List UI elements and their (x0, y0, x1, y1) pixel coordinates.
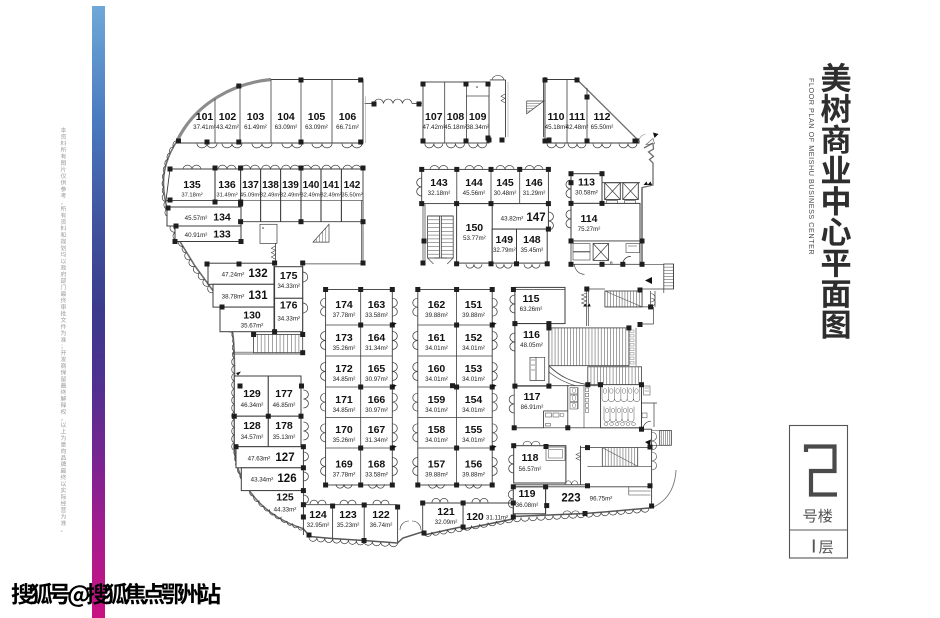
svg-text:136: 136 (218, 179, 236, 191)
svg-text:109: 109 (469, 111, 487, 123)
svg-text:37.78m²: 37.78m² (333, 312, 356, 319)
svg-text:34.01m²: 34.01m² (462, 407, 485, 414)
svg-text:121: 121 (437, 506, 455, 518)
svg-text:156: 156 (465, 459, 483, 471)
svg-text:165: 165 (368, 363, 386, 375)
svg-text:40.91m²: 40.91m² (185, 232, 208, 239)
svg-text:32.49m²: 32.49m² (280, 193, 301, 199)
svg-text:47.42m²: 47.42m² (422, 124, 445, 131)
svg-text:178: 178 (275, 420, 293, 432)
svg-text:127: 127 (275, 452, 294, 464)
svg-text:162: 162 (428, 299, 446, 311)
svg-text:34.01m²: 34.01m² (462, 345, 485, 352)
svg-text:107: 107 (425, 111, 443, 123)
svg-text:46.34m²: 46.34m² (241, 402, 264, 409)
svg-text:166: 166 (368, 394, 386, 406)
svg-text:125: 125 (276, 492, 294, 504)
svg-text:157: 157 (428, 459, 446, 471)
svg-text:34.01m²: 34.01m² (425, 345, 448, 352)
svg-text:34.57m²: 34.57m² (241, 434, 264, 441)
svg-text:32.09m²: 32.09m² (435, 519, 458, 526)
svg-text:159: 159 (428, 394, 446, 406)
svg-text:104: 104 (277, 111, 295, 123)
svg-text:63.26m²: 63.26m² (520, 306, 543, 313)
svg-text:147: 147 (526, 212, 545, 224)
svg-text:137: 137 (242, 180, 259, 191)
svg-text:101: 101 (196, 111, 214, 123)
svg-text:30.97m²: 30.97m² (365, 407, 388, 414)
svg-text:45.56m²: 45.56m² (463, 190, 486, 197)
svg-text:44.33m²: 44.33m² (274, 507, 297, 514)
svg-text:158: 158 (428, 424, 446, 436)
svg-text:172: 172 (335, 363, 353, 375)
svg-text:111: 111 (569, 111, 586, 123)
svg-text:146: 146 (525, 177, 543, 189)
svg-text:148: 148 (523, 234, 541, 246)
svg-text:103: 103 (247, 111, 265, 123)
svg-text:174: 174 (335, 299, 353, 311)
svg-text:120: 120 (466, 511, 484, 523)
svg-text:34.33m²: 34.33m² (277, 316, 300, 323)
svg-text:37.18m²: 37.18m² (181, 193, 202, 199)
svg-text:31.34m²: 31.34m² (365, 345, 388, 352)
svg-text:31.34m²: 31.34m² (365, 437, 388, 444)
svg-text:169: 169 (335, 459, 353, 471)
svg-text:30.97m²: 30.97m² (365, 376, 388, 383)
svg-text:35.50m²: 35.50m² (341, 193, 362, 199)
svg-text:53.77m²: 53.77m² (463, 235, 486, 242)
svg-text:130: 130 (243, 310, 261, 322)
svg-text:42.48m²: 42.48m² (566, 124, 589, 131)
svg-text:86.91m²: 86.91m² (521, 404, 544, 411)
svg-text:32.79m²: 32.79m² (493, 247, 516, 254)
svg-text:141: 141 (323, 180, 340, 191)
svg-text:154: 154 (465, 394, 483, 406)
svg-text:32.18m²: 32.18m² (428, 190, 451, 197)
svg-text:126: 126 (277, 473, 296, 485)
svg-text:106: 106 (339, 111, 357, 123)
svg-text:56.57m²: 56.57m² (519, 466, 542, 473)
svg-text:31.11m²: 31.11m² (486, 515, 508, 522)
svg-text:63.09m²: 63.09m² (275, 124, 298, 131)
svg-text:133: 133 (213, 229, 231, 241)
svg-text:34.01m²: 34.01m² (462, 437, 485, 444)
svg-text:34.01m²: 34.01m² (425, 407, 448, 414)
svg-text:33.58m²: 33.58m² (365, 312, 388, 319)
svg-text:39.88m²: 39.88m² (462, 312, 485, 319)
svg-text:142: 142 (344, 180, 361, 191)
svg-text:37.41m²: 37.41m² (193, 124, 216, 131)
svg-text:48.05m²: 48.05m² (520, 342, 543, 349)
svg-text:46.85m²: 46.85m² (273, 402, 296, 409)
svg-text:155: 155 (465, 424, 483, 436)
svg-text:139: 139 (282, 180, 299, 191)
svg-text:131: 131 (248, 290, 268, 302)
svg-text:34.01m²: 34.01m² (425, 376, 448, 383)
svg-text:35.26m²: 35.26m² (333, 437, 356, 444)
svg-text:163: 163 (368, 299, 386, 311)
svg-text:96.75m²: 96.75m² (590, 496, 613, 503)
svg-text:35.23m²: 35.23m² (337, 522, 360, 529)
svg-text:105: 105 (308, 111, 326, 123)
svg-text:36.08m²: 36.08m² (516, 502, 539, 509)
svg-text:119: 119 (519, 488, 536, 500)
svg-text:114: 114 (581, 213, 598, 225)
svg-text:47.63m²: 47.63m² (248, 456, 271, 463)
svg-text:123: 123 (339, 509, 357, 521)
svg-text:39.88m²: 39.88m² (462, 472, 485, 479)
svg-text:32.49m²: 32.49m² (320, 193, 341, 199)
svg-text:144: 144 (465, 177, 483, 189)
svg-text:39.88m²: 39.88m² (425, 312, 448, 319)
svg-text:30.58m²: 30.58m² (575, 190, 598, 197)
svg-text:30.48m²: 30.48m² (494, 190, 517, 197)
svg-text:35.26m²: 35.26m² (333, 345, 356, 352)
svg-text:152: 152 (465, 332, 483, 344)
svg-text:160: 160 (428, 363, 446, 375)
svg-text:37.78m²: 37.78m² (333, 472, 356, 479)
svg-text:168: 168 (368, 459, 386, 471)
svg-text:45.18m²: 45.18m² (444, 124, 467, 131)
svg-text:61.49m²: 61.49m² (244, 124, 267, 131)
svg-text:177: 177 (275, 388, 293, 400)
svg-text:173: 173 (335, 332, 353, 344)
svg-text:117: 117 (524, 391, 541, 403)
svg-text:34.01m²: 34.01m² (462, 376, 485, 383)
svg-text:39.88m²: 39.88m² (425, 472, 448, 479)
svg-text:45.57m²: 45.57m² (185, 215, 208, 222)
svg-text:102: 102 (219, 111, 237, 123)
svg-text:161: 161 (428, 332, 446, 344)
svg-text:116: 116 (523, 329, 540, 341)
svg-text:32.49m²: 32.49m² (260, 193, 281, 199)
svg-text:31.49m²: 31.49m² (216, 193, 237, 199)
svg-text:34.33m²: 34.33m² (277, 283, 300, 290)
svg-text:43.34m²: 43.34m² (251, 477, 274, 484)
svg-text:36.74m²: 36.74m² (370, 522, 393, 529)
svg-text:150: 150 (466, 222, 484, 234)
svg-text:138: 138 (262, 180, 279, 191)
svg-text:115: 115 (523, 293, 540, 305)
svg-text:170: 170 (335, 424, 353, 436)
svg-text:45.18m²: 45.18m² (545, 124, 568, 131)
svg-text:38.78m²: 38.78m² (222, 294, 245, 301)
svg-text:129: 129 (243, 388, 261, 400)
svg-text:43.82m²: 43.82m² (501, 216, 524, 223)
svg-text:43.42m²: 43.42m² (216, 124, 239, 131)
svg-text:151: 151 (465, 299, 483, 311)
svg-text:153: 153 (465, 363, 483, 375)
svg-text:122: 122 (372, 509, 390, 521)
svg-text:118: 118 (522, 452, 539, 464)
svg-text:63.09m²: 63.09m² (305, 124, 328, 131)
svg-text:FLOOR PLAN OF MEISHU BUSINESS: FLOOR PLAN OF MEISHU BUSINESS CENTER (807, 78, 816, 255)
svg-text:32.95m²: 32.95m² (307, 522, 330, 529)
svg-text:223: 223 (561, 493, 580, 505)
svg-text:112: 112 (594, 111, 611, 123)
svg-text:145: 145 (496, 177, 514, 189)
svg-text:113: 113 (578, 177, 595, 189)
svg-text:140: 140 (303, 180, 320, 191)
svg-text:38.34m²: 38.34m² (466, 124, 489, 131)
svg-text:75.27m²: 75.27m² (578, 226, 601, 233)
svg-text:135: 135 (183, 179, 201, 191)
svg-text:164: 164 (368, 332, 386, 344)
svg-text:149: 149 (496, 234, 514, 246)
svg-text:35.45m²: 35.45m² (521, 247, 544, 254)
svg-text:124: 124 (309, 509, 327, 521)
svg-text:32.49m²: 32.49m² (300, 193, 321, 199)
svg-text:34.85m²: 34.85m² (333, 376, 356, 383)
svg-text:176: 176 (280, 300, 298, 312)
svg-text:134: 134 (213, 212, 231, 224)
svg-text:167: 167 (368, 424, 386, 436)
svg-text:66.71m²: 66.71m² (336, 124, 359, 131)
svg-text:35.67m²: 35.67m² (241, 323, 264, 330)
svg-text:31.29m²: 31.29m² (523, 190, 546, 197)
svg-text:175: 175 (280, 270, 298, 282)
svg-text:132: 132 (248, 268, 267, 280)
svg-text:47.24m²: 47.24m² (222, 272, 245, 279)
svg-text:65.50m²: 65.50m² (591, 124, 614, 131)
svg-text:33.58m²: 33.58m² (365, 472, 388, 479)
svg-text:34.01m²: 34.01m² (425, 437, 448, 444)
svg-text:108: 108 (447, 111, 465, 123)
svg-text:171: 171 (335, 394, 353, 406)
svg-text:34.85m²: 34.85m² (333, 407, 356, 414)
svg-text:35.13m²: 35.13m² (273, 434, 296, 441)
svg-text:110: 110 (548, 111, 565, 123)
svg-text:128: 128 (243, 420, 261, 432)
svg-text:143: 143 (430, 177, 448, 189)
svg-text:45.09m²: 45.09m² (240, 193, 261, 199)
